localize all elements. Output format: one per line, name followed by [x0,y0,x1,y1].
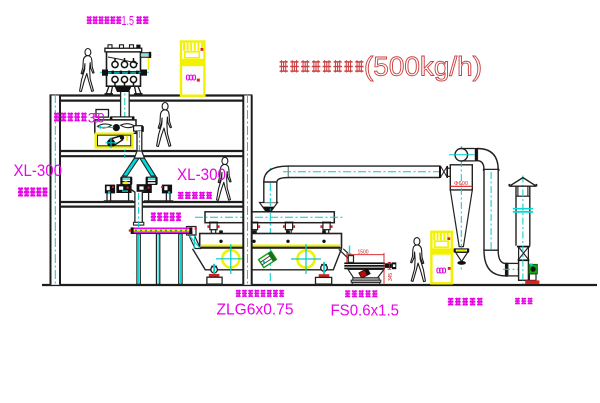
svg-text:XL-300: XL-300 [177,166,226,184]
svg-text:ZLG6x0.75: ZLG6x0.75 [217,302,294,319]
svg-text:1500: 1500 [358,250,369,256]
svg-text:345: 345 [388,273,394,281]
svg-text:Φ600: Φ600 [454,181,468,187]
svg-text:(500kg/h): (500kg/h) [364,52,482,82]
svg-text:1.5: 1.5 [122,13,135,28]
svg-text:000: 000 [186,73,197,83]
svg-text:350: 350 [88,110,105,126]
svg-text:FS0.6x1.5: FS0.6x1.5 [331,303,400,320]
svg-text:XL-300: XL-300 [14,162,63,180]
svg-text:000: 000 [436,266,447,276]
